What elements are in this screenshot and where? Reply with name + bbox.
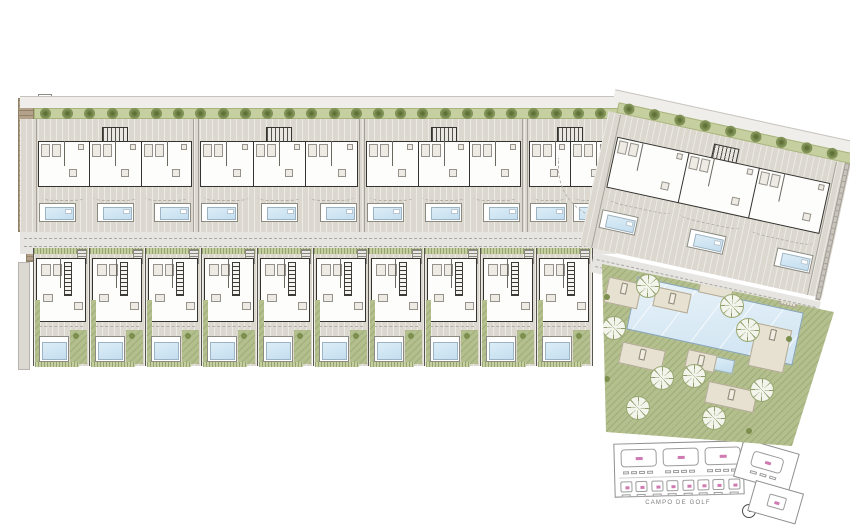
furniture — [546, 294, 556, 302]
pool-water — [377, 342, 402, 360]
furniture — [573, 144, 582, 157]
furniture — [338, 169, 346, 177]
tree-icon — [626, 396, 650, 420]
terrace-edge — [207, 326, 251, 327]
terrace-edge — [145, 189, 188, 201]
furniture — [458, 144, 464, 150]
pool-step — [123, 209, 130, 214]
private-pool — [39, 336, 69, 362]
tree-icon — [682, 364, 706, 388]
site-plan: CAMPO DE GOLF N — [0, 0, 850, 530]
stair-ladder-icon — [455, 262, 463, 296]
terrace-edge — [95, 326, 139, 327]
key-small-unit — [728, 478, 740, 489]
furniture — [242, 302, 251, 310]
pool-step — [393, 209, 400, 214]
key-small-unit — [636, 481, 648, 492]
key-small-unit — [713, 479, 725, 490]
key-unit-label — [672, 485, 676, 488]
front-hedge — [259, 362, 303, 367]
key-terrace — [699, 492, 708, 495]
furniture — [298, 302, 307, 310]
furniture — [155, 294, 165, 302]
terrace-edge — [422, 189, 466, 201]
pool-water — [266, 342, 291, 360]
terrace-edge — [319, 326, 363, 327]
tree-icon — [462, 108, 473, 119]
furniture — [256, 144, 265, 157]
unit-divider-wall — [89, 141, 90, 187]
front-hedge — [91, 362, 135, 367]
shrub — [297, 333, 303, 339]
shrub — [129, 333, 135, 339]
key-terrace — [652, 493, 661, 496]
key-terrace — [639, 471, 645, 474]
pool-water — [207, 207, 236, 220]
pool-water — [98, 342, 123, 360]
furniture — [203, 144, 212, 157]
furniture — [52, 144, 61, 157]
unit-divider-wall — [253, 141, 254, 187]
pool-water — [373, 207, 402, 220]
private-pool — [319, 336, 349, 362]
furniture — [532, 144, 541, 157]
pool-step — [346, 209, 353, 214]
tree-icon — [484, 108, 495, 119]
pool-water — [42, 342, 67, 360]
private-pool — [374, 336, 404, 362]
key-terrace — [769, 476, 777, 481]
furniture — [378, 294, 388, 302]
interior-wall — [392, 141, 393, 166]
key-terrace — [723, 469, 729, 472]
key-terrace — [759, 473, 767, 478]
terrace-edge — [486, 326, 530, 327]
tree-icon — [129, 108, 140, 119]
key-unit-label — [641, 486, 645, 489]
tree-icon — [107, 108, 118, 119]
tree-icon — [440, 108, 451, 119]
pool-step — [287, 209, 294, 214]
key-small-unit — [620, 481, 632, 492]
furniture — [92, 144, 101, 157]
shrub — [786, 336, 792, 342]
interior-wall — [507, 258, 508, 288]
pool-water — [489, 342, 514, 360]
pool-water — [433, 342, 458, 360]
key-unit-label — [625, 486, 629, 489]
pool-water — [160, 207, 189, 220]
boundary-wall — [18, 262, 30, 370]
pool-water — [103, 207, 132, 220]
stair-core-icon — [431, 127, 457, 142]
furniture — [321, 264, 331, 276]
key-unit-label — [765, 461, 772, 466]
stair-ladder-icon — [344, 262, 352, 296]
pool-water — [326, 207, 355, 220]
key-unit-label — [636, 457, 643, 460]
furniture — [398, 169, 406, 177]
shrub — [185, 333, 191, 339]
furniture — [376, 264, 386, 276]
interior-wall — [444, 141, 445, 166]
golf-course-label: CAMPO DE GOLF — [614, 500, 742, 506]
interior-wall — [226, 141, 227, 166]
shrub — [353, 333, 359, 339]
furniture — [294, 144, 300, 150]
furniture — [550, 169, 558, 177]
furniture — [144, 144, 153, 157]
furniture — [543, 144, 552, 157]
pool-step — [180, 209, 187, 214]
furniture — [242, 144, 248, 150]
private-pool — [97, 203, 134, 222]
furniture — [676, 153, 683, 160]
key-unit-label — [678, 456, 685, 459]
key-small-unit — [666, 480, 678, 491]
furniture — [369, 144, 378, 157]
stair-core-icon — [102, 127, 128, 142]
pool-water — [322, 342, 347, 360]
stair-ladder-icon — [511, 262, 519, 296]
pool-step — [65, 209, 72, 214]
key-terrace — [707, 469, 713, 472]
tree-icon — [636, 274, 660, 298]
furniture — [407, 144, 413, 150]
pool-water — [431, 207, 460, 220]
furniture — [265, 264, 275, 276]
furniture — [319, 144, 328, 157]
tree-icon — [329, 108, 340, 119]
furniture — [818, 184, 825, 191]
shrub — [604, 294, 610, 300]
furniture — [214, 144, 223, 157]
terrace-edge — [263, 326, 307, 327]
furniture — [409, 302, 418, 310]
terrace-edge — [430, 326, 474, 327]
furniture — [421, 144, 430, 157]
furniture — [43, 294, 53, 302]
private-pool — [201, 203, 238, 222]
tree-icon — [650, 366, 674, 390]
tree-icon — [720, 294, 744, 318]
terrace-edge — [93, 189, 136, 201]
key-unit-label — [720, 455, 727, 458]
furniture — [308, 144, 317, 157]
key-unit-label — [733, 483, 737, 486]
stair-core-icon — [266, 127, 292, 142]
pool-water — [489, 207, 518, 220]
furniture — [209, 264, 219, 276]
key-plan: CAMPO DE GOLF N — [612, 436, 850, 530]
front-hedge — [203, 362, 247, 367]
furniture — [41, 264, 51, 276]
pool-water — [536, 207, 565, 220]
terrace-edge — [204, 189, 249, 201]
key-unit-label — [687, 485, 691, 488]
interior-wall — [340, 258, 341, 288]
key-terrace — [647, 471, 653, 474]
private-pool — [207, 336, 237, 362]
furniture — [347, 144, 353, 150]
tree-icon — [573, 108, 584, 119]
unit-divider-wall — [305, 141, 306, 187]
tree-icon — [40, 108, 51, 119]
tree-icon — [240, 108, 251, 119]
interior-wall — [60, 258, 61, 288]
pool-water — [45, 207, 74, 220]
unit-divider-wall — [469, 141, 470, 187]
sun-lounger-icon — [668, 293, 676, 305]
pool-water — [210, 342, 235, 360]
tree-icon — [736, 318, 760, 342]
furniture — [354, 302, 363, 310]
key-terrace — [681, 470, 687, 473]
private-pool — [95, 336, 125, 362]
key-small-unit — [651, 480, 663, 491]
lane-marking — [24, 246, 612, 247]
front-hedge — [147, 362, 191, 367]
furniture — [267, 144, 276, 157]
front-hedge — [315, 362, 359, 367]
furniture — [731, 197, 741, 207]
key-large-unit — [662, 447, 698, 466]
tree-icon — [702, 406, 726, 430]
interior-wall — [64, 141, 65, 166]
pool-step — [227, 209, 234, 214]
stair-ladder-icon — [399, 262, 407, 296]
furniture — [69, 169, 77, 177]
interior-wall — [331, 141, 332, 166]
pool-step — [801, 259, 809, 265]
furniture — [285, 169, 293, 177]
furniture — [103, 144, 112, 157]
key-unit-label — [774, 501, 779, 505]
furniture — [97, 264, 107, 276]
stair-ladder-icon — [120, 262, 128, 296]
interior-wall — [116, 258, 117, 288]
furniture — [483, 144, 492, 157]
key-large-unit — [704, 446, 740, 465]
tree-icon — [373, 108, 384, 119]
furniture — [432, 144, 441, 157]
furniture — [380, 144, 389, 157]
terrace-edge — [39, 326, 83, 327]
terrace-edge — [370, 189, 414, 201]
furniture — [521, 302, 530, 310]
private-pool — [430, 336, 460, 362]
shrub — [73, 333, 79, 339]
private-pool — [154, 203, 191, 222]
shrub — [604, 376, 610, 382]
interior-wall — [451, 258, 452, 288]
furniture — [559, 144, 565, 150]
furniture — [465, 302, 474, 310]
terrace-edge — [42, 189, 85, 201]
sun-lounger-icon — [620, 283, 628, 295]
key-terrace — [714, 492, 723, 495]
stair-ladder-icon — [176, 262, 184, 296]
furniture — [501, 169, 509, 177]
interior-wall — [228, 258, 229, 288]
furniture — [211, 294, 221, 302]
furniture — [130, 144, 136, 150]
furniture — [584, 144, 593, 157]
sidewalk — [20, 96, 618, 108]
key-terrace — [673, 470, 679, 473]
stair-ladder-icon — [232, 262, 240, 296]
pool-water — [154, 342, 179, 360]
private-pool — [320, 203, 357, 222]
sun-lounger-icon — [638, 349, 646, 361]
furniture — [449, 169, 457, 177]
pool-water — [267, 207, 296, 220]
furniture — [432, 264, 442, 276]
furniture — [488, 264, 498, 276]
tree-icon — [551, 108, 562, 119]
key-small-unit — [766, 493, 787, 510]
furniture — [233, 169, 241, 177]
interior-wall — [284, 258, 285, 288]
terrace-edge — [257, 189, 302, 201]
furniture — [41, 144, 50, 157]
private-pool — [367, 203, 404, 222]
furniture — [510, 144, 516, 150]
furniture — [74, 302, 83, 310]
tree-icon — [218, 108, 229, 119]
furniture — [153, 264, 163, 276]
furniture — [267, 294, 277, 302]
interior-wall — [563, 258, 564, 288]
furniture — [323, 294, 333, 302]
unit-divider-wall — [418, 141, 419, 187]
key-unit-label — [718, 484, 722, 487]
interior-wall — [495, 141, 496, 166]
key-terrace — [729, 491, 738, 494]
key-small-unit — [682, 480, 694, 491]
furniture — [186, 302, 195, 310]
key-terrace — [683, 493, 692, 496]
key-unit-label — [656, 485, 660, 488]
stair-core-icon — [557, 127, 583, 142]
private-pool — [483, 203, 520, 222]
key-terrace — [665, 470, 671, 473]
interior-wall — [555, 141, 556, 166]
furniture — [747, 168, 754, 175]
stair-ladder-icon — [64, 262, 72, 296]
private-pool — [486, 336, 516, 362]
key-terrace — [637, 494, 646, 497]
key-small-unit — [697, 479, 709, 490]
tree-icon — [262, 108, 273, 119]
key-plan-outline — [613, 440, 744, 497]
sun-lounger-icon — [769, 329, 777, 341]
furniture — [490, 294, 500, 302]
private-pool — [425, 203, 462, 222]
key-terrace — [689, 470, 695, 473]
furniture — [130, 302, 139, 310]
pool-step — [626, 221, 634, 227]
furniture — [660, 181, 670, 191]
furniture — [99, 294, 109, 302]
interior-wall — [395, 258, 396, 288]
key-unit-label — [702, 484, 706, 487]
key-large-unit — [620, 449, 656, 468]
furniture — [544, 264, 554, 276]
terrace-edge — [374, 326, 418, 327]
sun-lounger-icon — [727, 389, 735, 401]
tree-icon — [750, 378, 774, 402]
lane-marking — [24, 238, 612, 239]
furniture — [472, 144, 481, 157]
front-hedge — [426, 362, 470, 367]
furniture — [181, 144, 187, 150]
shrub — [241, 333, 247, 339]
private-pool — [263, 336, 293, 362]
key-terrace — [715, 469, 721, 472]
terrace-edge — [309, 189, 354, 201]
furniture — [802, 212, 812, 222]
tree-icon — [351, 108, 362, 119]
pool-step — [556, 209, 563, 214]
stair-ladder-icon — [288, 262, 296, 296]
interior-wall — [115, 141, 116, 166]
key-terrace — [623, 471, 629, 474]
pool-step — [509, 209, 516, 214]
interior-wall — [167, 141, 168, 166]
private-pool — [39, 203, 76, 222]
interior-wall — [172, 258, 173, 288]
terrace-edge — [151, 326, 195, 327]
furniture — [78, 144, 84, 150]
front-hedge — [35, 362, 79, 367]
front-hedge — [370, 362, 414, 367]
furniture — [121, 169, 129, 177]
unit-divider-wall — [141, 141, 142, 187]
key-terrace — [622, 494, 631, 497]
key-terrace — [668, 493, 677, 496]
tree-icon — [151, 108, 162, 119]
terrace-edge — [533, 189, 566, 201]
interior-wall — [279, 141, 280, 166]
key-terrace — [750, 470, 758, 475]
private-pool — [151, 336, 181, 362]
furniture — [434, 294, 444, 302]
furniture — [155, 144, 164, 157]
furniture — [172, 169, 180, 177]
front-hedge — [482, 362, 526, 367]
shrub — [746, 428, 752, 434]
key-terrace — [631, 471, 637, 474]
private-pool — [261, 203, 298, 222]
terrace-edge — [473, 189, 517, 201]
pool-step — [713, 240, 721, 246]
pool-step — [451, 209, 458, 214]
private-pool — [530, 203, 567, 222]
tree-icon — [602, 316, 626, 340]
